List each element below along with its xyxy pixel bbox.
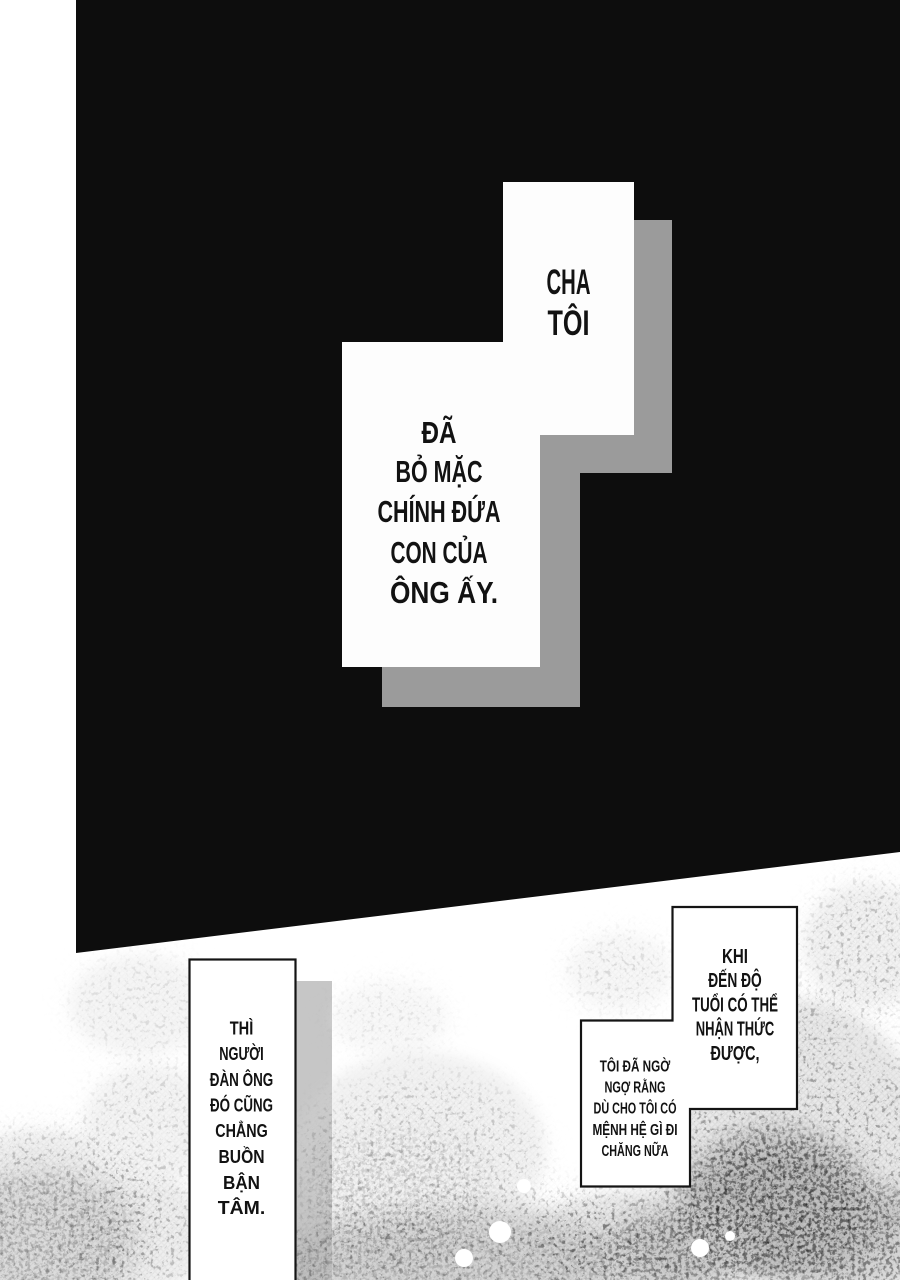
svg-text:MỆNH HỆ GÌ ĐI: MỆNH HỆ GÌ ĐI <box>593 1121 678 1139</box>
svg-text:CON CỦA: CON CỦA <box>391 534 488 570</box>
svg-text:ĐÀN ÔNG: ĐÀN ÔNG <box>210 1069 274 1090</box>
svg-text:BẬN: BẬN <box>223 1172 260 1193</box>
svg-text:TÔI: TÔI <box>548 303 590 343</box>
svg-text:THÌ: THÌ <box>230 1018 254 1039</box>
svg-text:ĐƯỢC,: ĐƯỢC, <box>711 1043 760 1065</box>
svg-text:BUỒN: BUỒN <box>219 1146 265 1167</box>
svg-text:NGỢ RẰNG: NGỢ RẰNG <box>605 1079 666 1097</box>
svg-text:CHÍNH ĐỨA: CHÍNH ĐỨA <box>378 493 501 529</box>
svg-text:CHA: CHA <box>547 263 591 302</box>
svg-text:TUỔI CÓ THỂ: TUỔI CÓ THỂ <box>692 992 778 1016</box>
svg-text:NGƯỜI: NGƯỜI <box>219 1043 264 1064</box>
svg-text:KHI: KHI <box>722 946 748 968</box>
svg-text:TÂM.: TÂM. <box>218 1197 266 1218</box>
svg-text:CHĂNG NỮA: CHĂNG NỮA <box>602 1142 669 1160</box>
svg-text:BỎ MẶC: BỎ MẶC <box>396 453 483 489</box>
svg-text:DÙ CHO TÔI CÓ: DÙ CHO TÔI CÓ <box>594 1100 677 1118</box>
svg-text:TÔI ĐÃ NGỜ: TÔI ĐÃ NGỜ <box>600 1058 671 1076</box>
svg-text:ĐẾN ĐỘ: ĐẾN ĐỘ <box>708 968 762 992</box>
svg-text:CHẲNG: CHẲNG <box>215 1120 268 1141</box>
svg-text:ĐÃ: ĐÃ <box>422 415 457 450</box>
svg-text:NHẬN THỨC: NHẬN THỨC <box>696 1017 775 1041</box>
svg-text:ĐÓ CŨNG: ĐÓ CŨNG <box>210 1095 273 1116</box>
svg-text:ÔNG ẤY.: ÔNG ẤY. <box>390 574 498 610</box>
